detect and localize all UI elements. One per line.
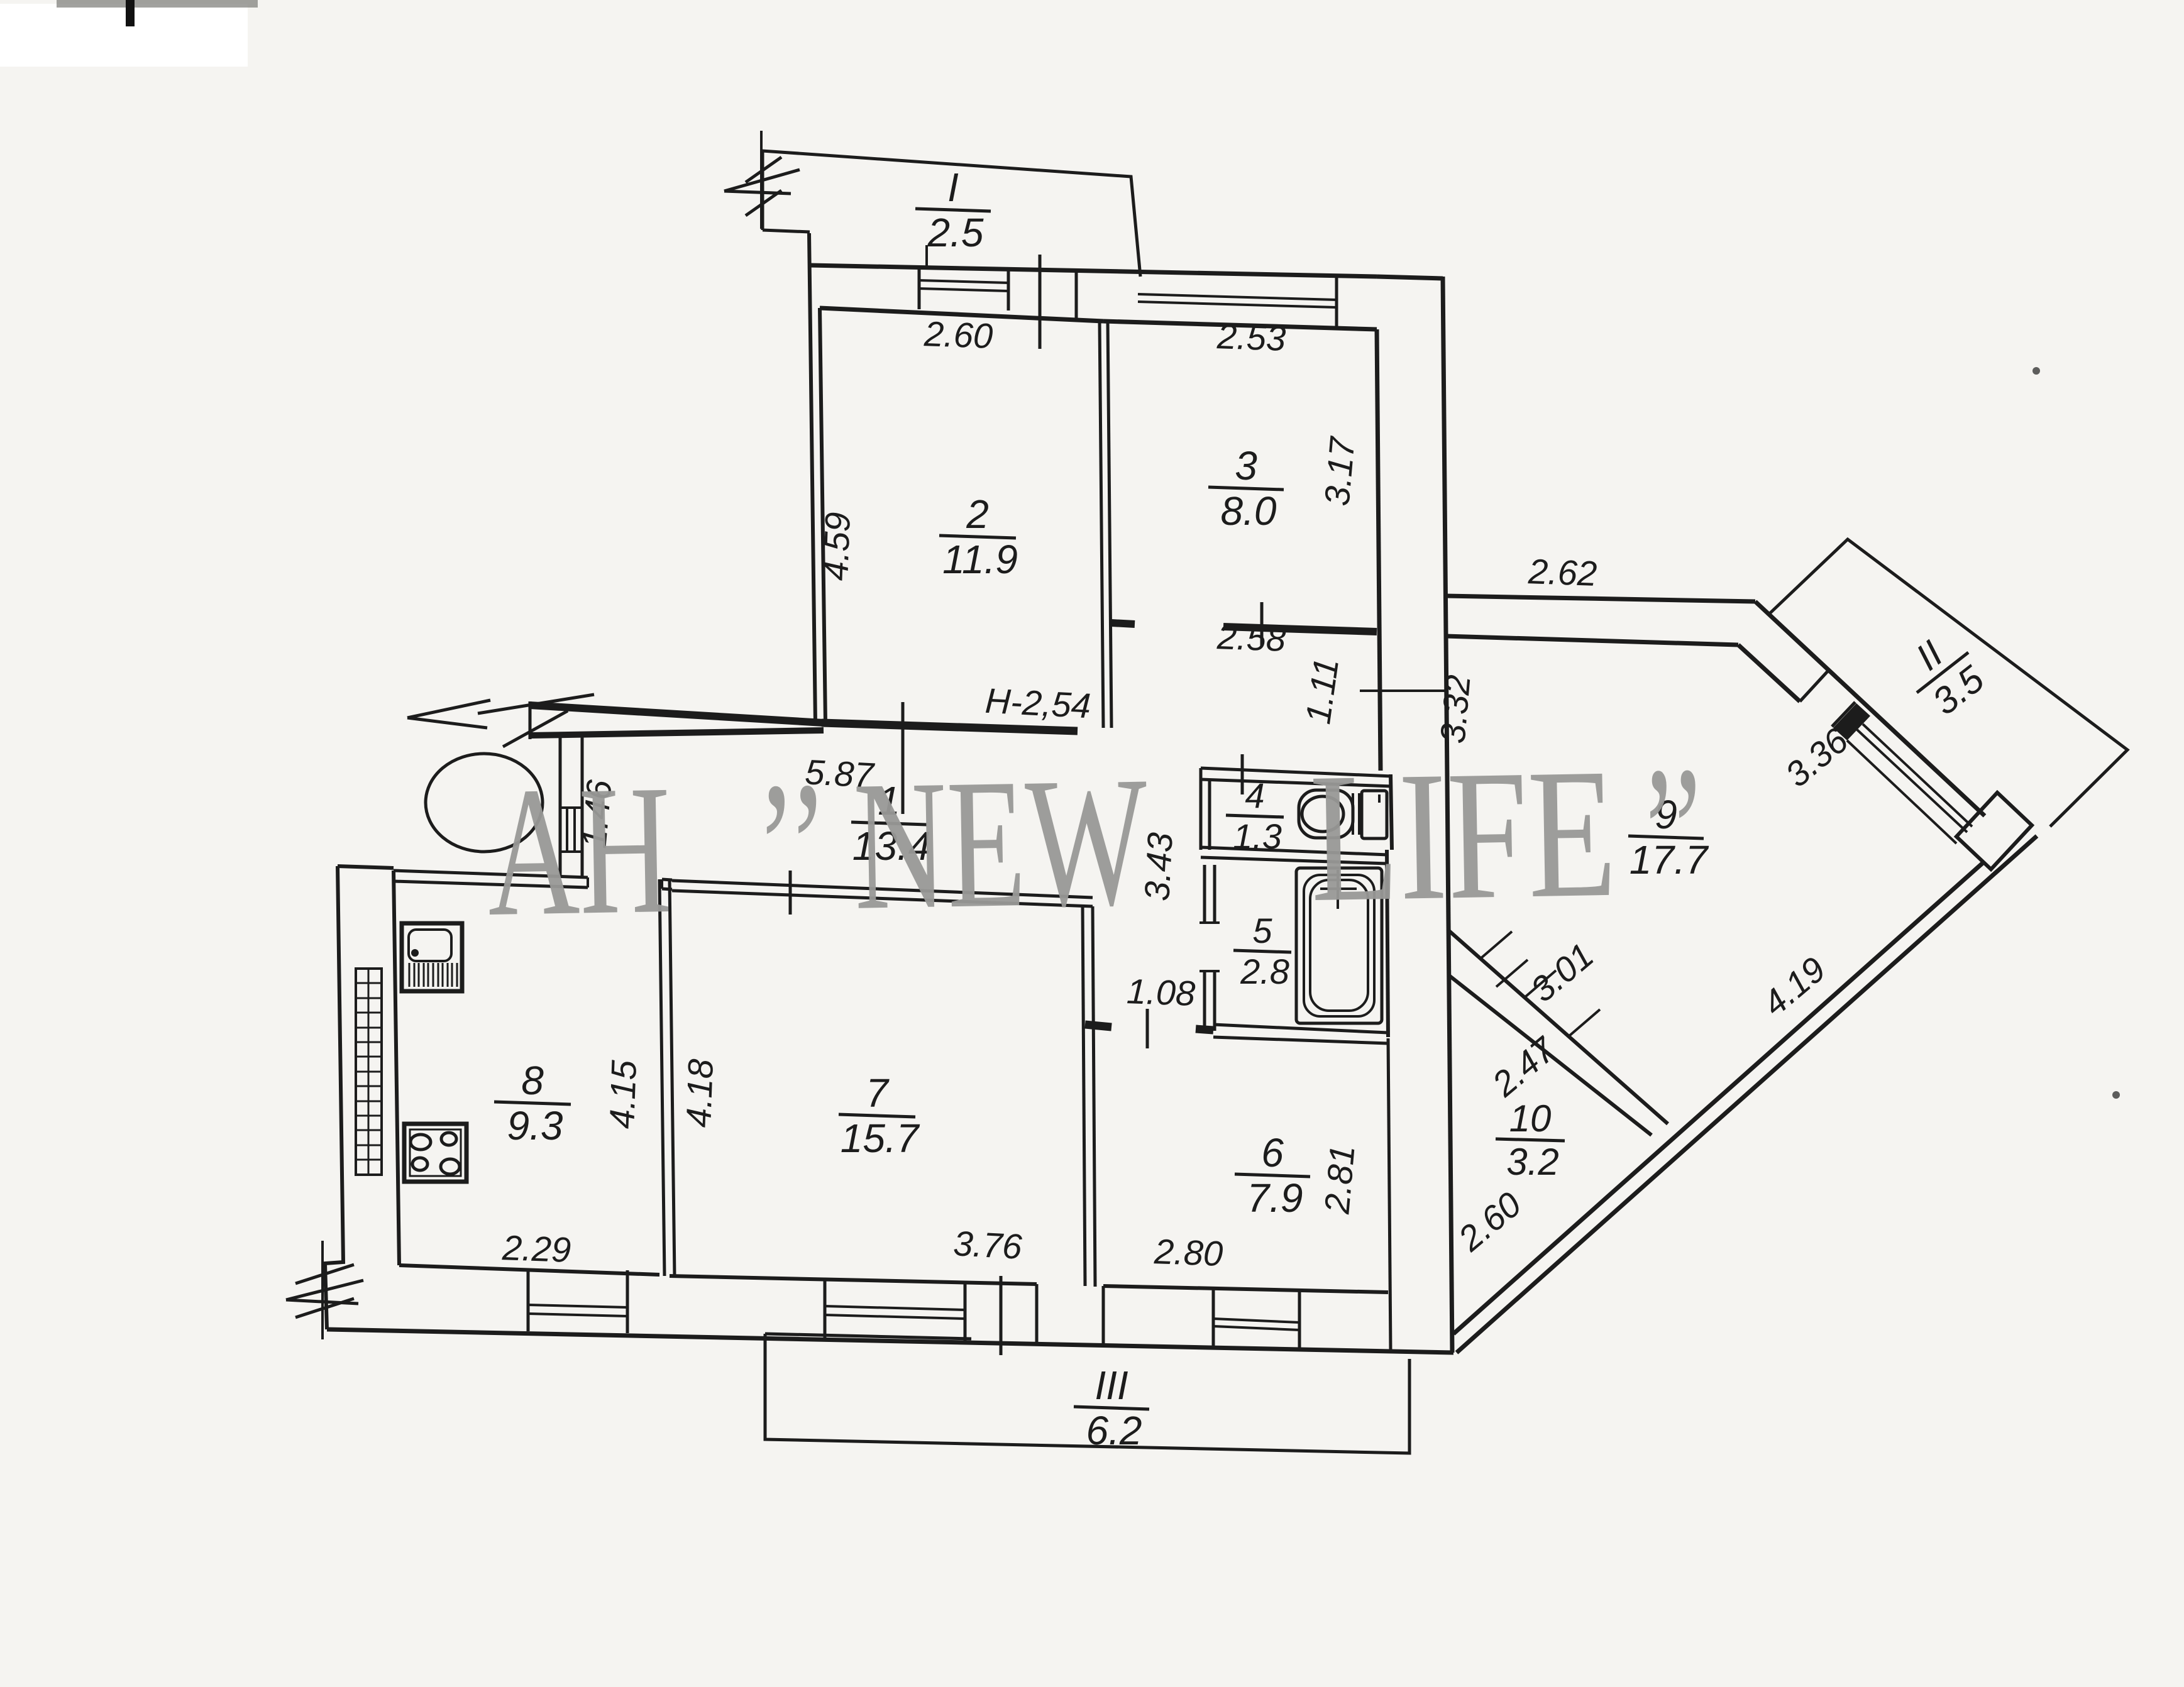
svg-text:1.08: 1.08 bbox=[1126, 971, 1196, 1013]
svg-text:2.80: 2.80 bbox=[1153, 1231, 1223, 1273]
svg-text:2.62: 2.62 bbox=[1527, 551, 1597, 593]
svg-text:2.58: 2.58 bbox=[1216, 617, 1286, 659]
svg-text:I: I bbox=[947, 165, 959, 210]
svg-text:3.2: 3.2 bbox=[1506, 1141, 1558, 1183]
svg-text:2.8: 2.8 bbox=[1240, 952, 1289, 991]
svg-text:10: 10 bbox=[1509, 1097, 1552, 1140]
svg-text:АН: АН bbox=[485, 746, 673, 955]
svg-text:4: 4 bbox=[1245, 776, 1264, 815]
svg-text:5: 5 bbox=[1252, 911, 1272, 950]
svg-text:8: 8 bbox=[521, 1058, 544, 1103]
svg-text:2.60: 2.60 bbox=[923, 314, 993, 356]
svg-text:8.0: 8.0 bbox=[1221, 488, 1277, 534]
svg-text:4.15: 4.15 bbox=[602, 1059, 644, 1129]
svg-text:3: 3 bbox=[1235, 443, 1257, 488]
svg-text:11.9: 11.9 bbox=[942, 537, 1018, 582]
svg-text:Н-2,54: Н-2,54 bbox=[984, 681, 1091, 726]
svg-text:2.81: 2.81 bbox=[1316, 1143, 1362, 1216]
svg-text:7.9: 7.9 bbox=[1247, 1175, 1303, 1221]
svg-text:2: 2 bbox=[966, 492, 989, 537]
svg-text:3.76: 3.76 bbox=[952, 1223, 1023, 1267]
svg-text:3.17: 3.17 bbox=[1316, 434, 1362, 507]
svg-text:6: 6 bbox=[1261, 1130, 1284, 1175]
svg-text:2.29: 2.29 bbox=[501, 1228, 571, 1270]
svg-text:’’: ’’ bbox=[1639, 728, 1709, 935]
svg-text:9.3: 9.3 bbox=[507, 1103, 563, 1148]
svg-text:2.5: 2.5 bbox=[927, 210, 984, 255]
svg-text:4.18: 4.18 bbox=[678, 1058, 720, 1128]
svg-text:1.3: 1.3 bbox=[1233, 816, 1282, 856]
svg-text:LIFE: LIFE bbox=[1308, 730, 1618, 940]
svg-text:6.2: 6.2 bbox=[1086, 1408, 1142, 1453]
svg-text:III: III bbox=[1095, 1363, 1128, 1408]
svg-text:7: 7 bbox=[866, 1070, 890, 1116]
svg-text:15.7: 15.7 bbox=[841, 1116, 920, 1161]
svg-text:4.59: 4.59 bbox=[815, 512, 858, 581]
svg-text:NEW: NEW bbox=[852, 738, 1150, 948]
svg-text:2.53: 2.53 bbox=[1216, 316, 1286, 358]
svg-text:’’: ’’ bbox=[754, 744, 830, 950]
